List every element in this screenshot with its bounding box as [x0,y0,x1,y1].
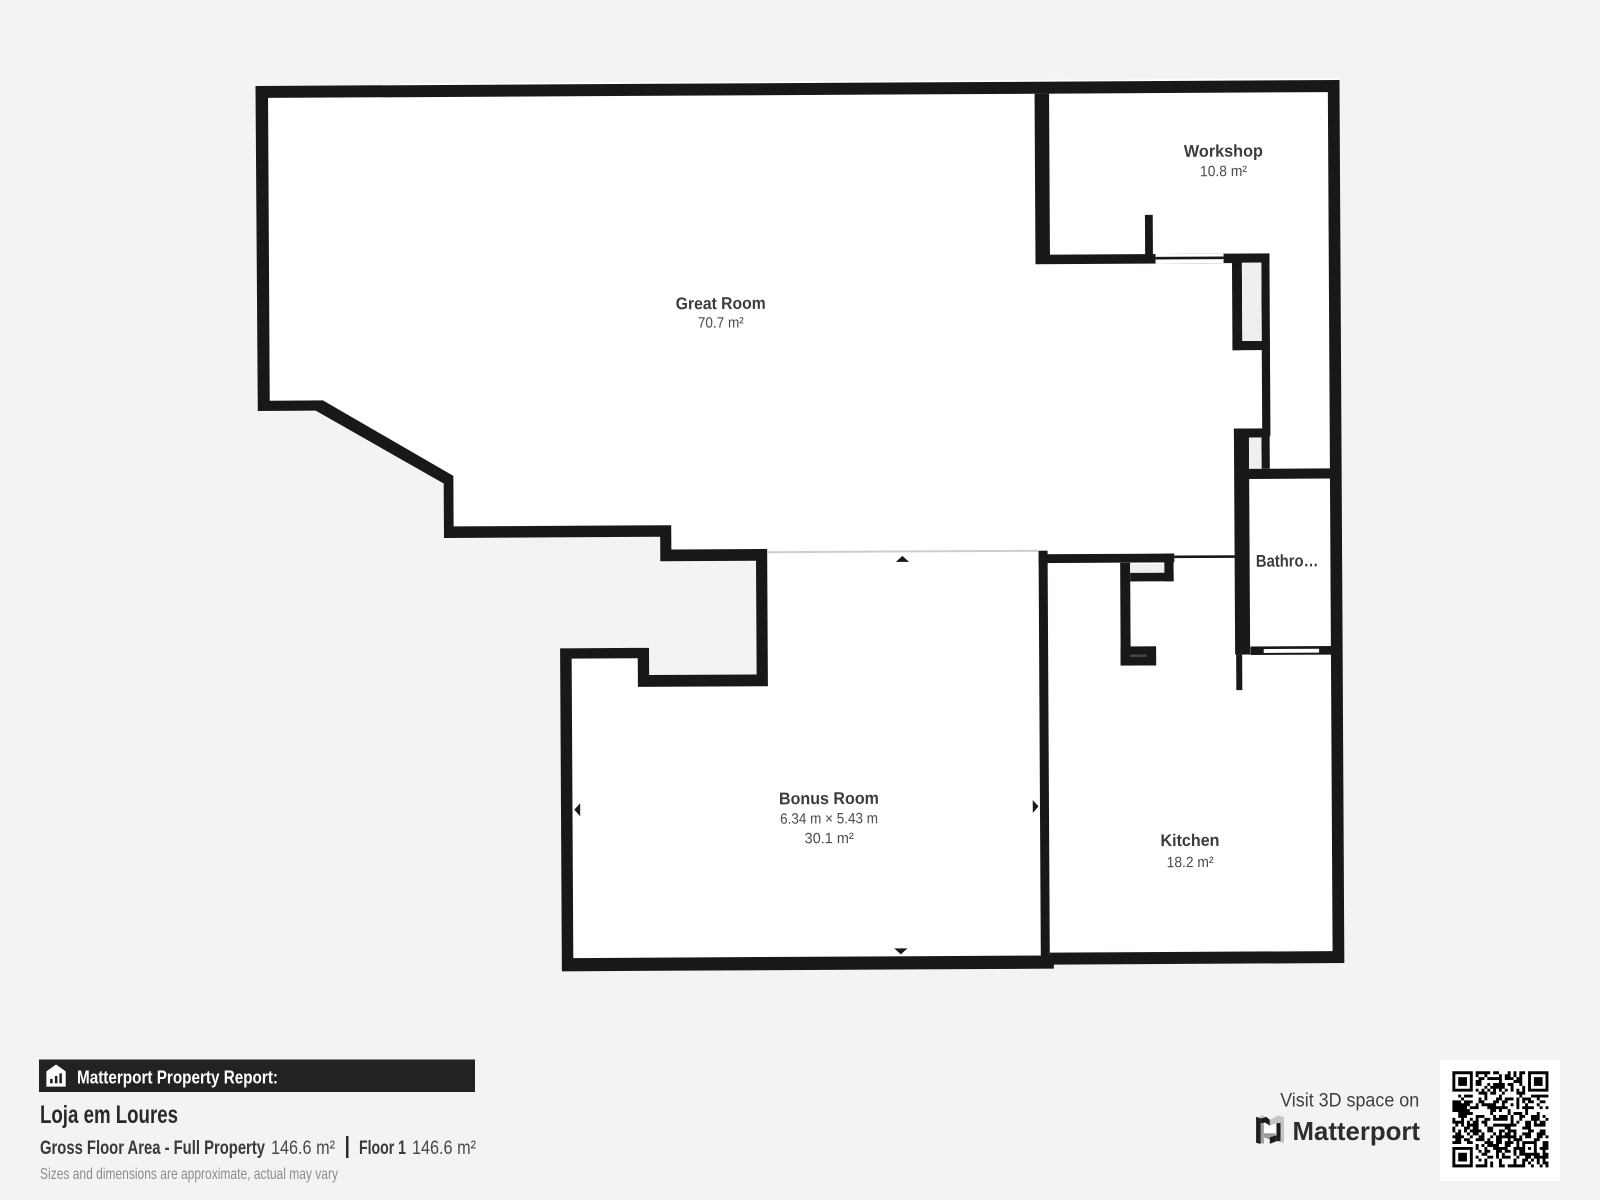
svg-text:146.6 m²: 146.6 m² [271,1138,335,1159]
svg-text:18.2 m²: 18.2 m² [1167,854,1214,871]
svg-text:70.7 m²: 70.7 m² [698,314,744,331]
svg-text:Kitchen: Kitchen [1160,831,1219,850]
svg-text:10.8 m²: 10.8 m² [1200,163,1247,180]
svg-text:Gross Floor Area - Full Proper: Gross Floor Area - Full Property [40,1138,265,1159]
svg-text:6.34 m × 5.43 m: 6.34 m × 5.43 m [780,810,878,828]
svg-text:146.6 m²: 146.6 m² [412,1138,476,1159]
svg-text:Matterport Property Report:: Matterport Property Report: [77,1067,278,1088]
svg-text:Floor 1: Floor 1 [359,1138,406,1159]
svg-text:Matterport: Matterport [1293,1116,1421,1146]
svg-text:Visit 3D space on: Visit 3D space on [1280,1091,1419,1112]
svg-text:Great Room: Great Room [676,294,766,313]
svg-text:Bathro…: Bathro… [1256,551,1319,570]
svg-text:Workshop: Workshop [1184,141,1263,160]
svg-text:Bonus Room: Bonus Room [779,789,879,809]
svg-text:30.1 m²: 30.1 m² [805,830,854,847]
svg-text:Loja em Loures: Loja em Loures [40,1101,178,1129]
svg-text:Sizes and dimensions are appro: Sizes and dimensions are approximate, ac… [40,1166,338,1183]
